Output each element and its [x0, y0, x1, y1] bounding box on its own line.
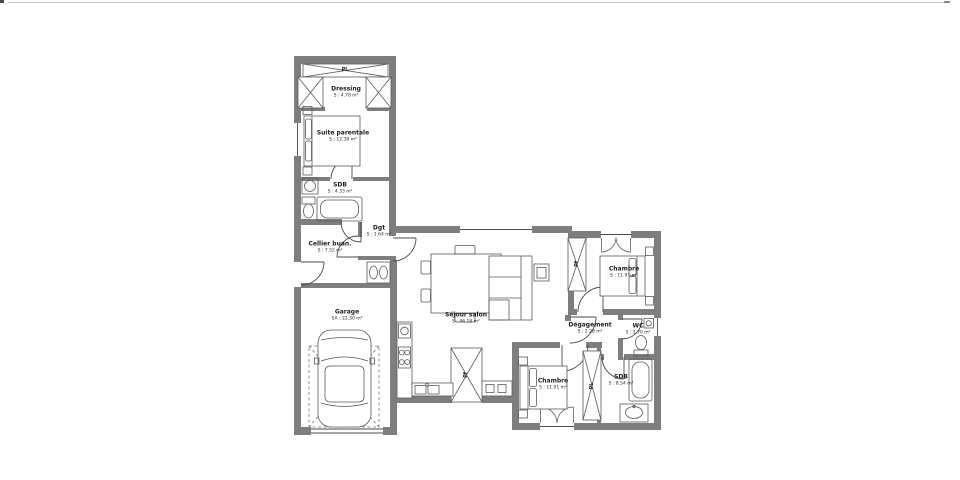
- master-bathroom-fixtures: [302, 178, 362, 221]
- scanned-floor-plan-page: Dressing S : 4.78 m² Suite parentale S :…: [0, 0, 960, 480]
- sideboard: [482, 381, 512, 396]
- bed-chambre-1: [600, 247, 654, 305]
- toilet-wc: [634, 319, 654, 357]
- scan-artifacts: [0, 0, 950, 3]
- side-table: [534, 264, 549, 281]
- floor-plan-drawing: [0, 0, 960, 480]
- bed-chambre-2: [519, 357, 568, 418]
- parental-bed: [303, 107, 360, 176]
- sofa: [489, 256, 532, 320]
- cellier-sink: [367, 262, 390, 283]
- kitchen-block: [397, 322, 453, 398]
- bathtub-sdb: [620, 359, 652, 422]
- garage-car: [309, 330, 379, 427]
